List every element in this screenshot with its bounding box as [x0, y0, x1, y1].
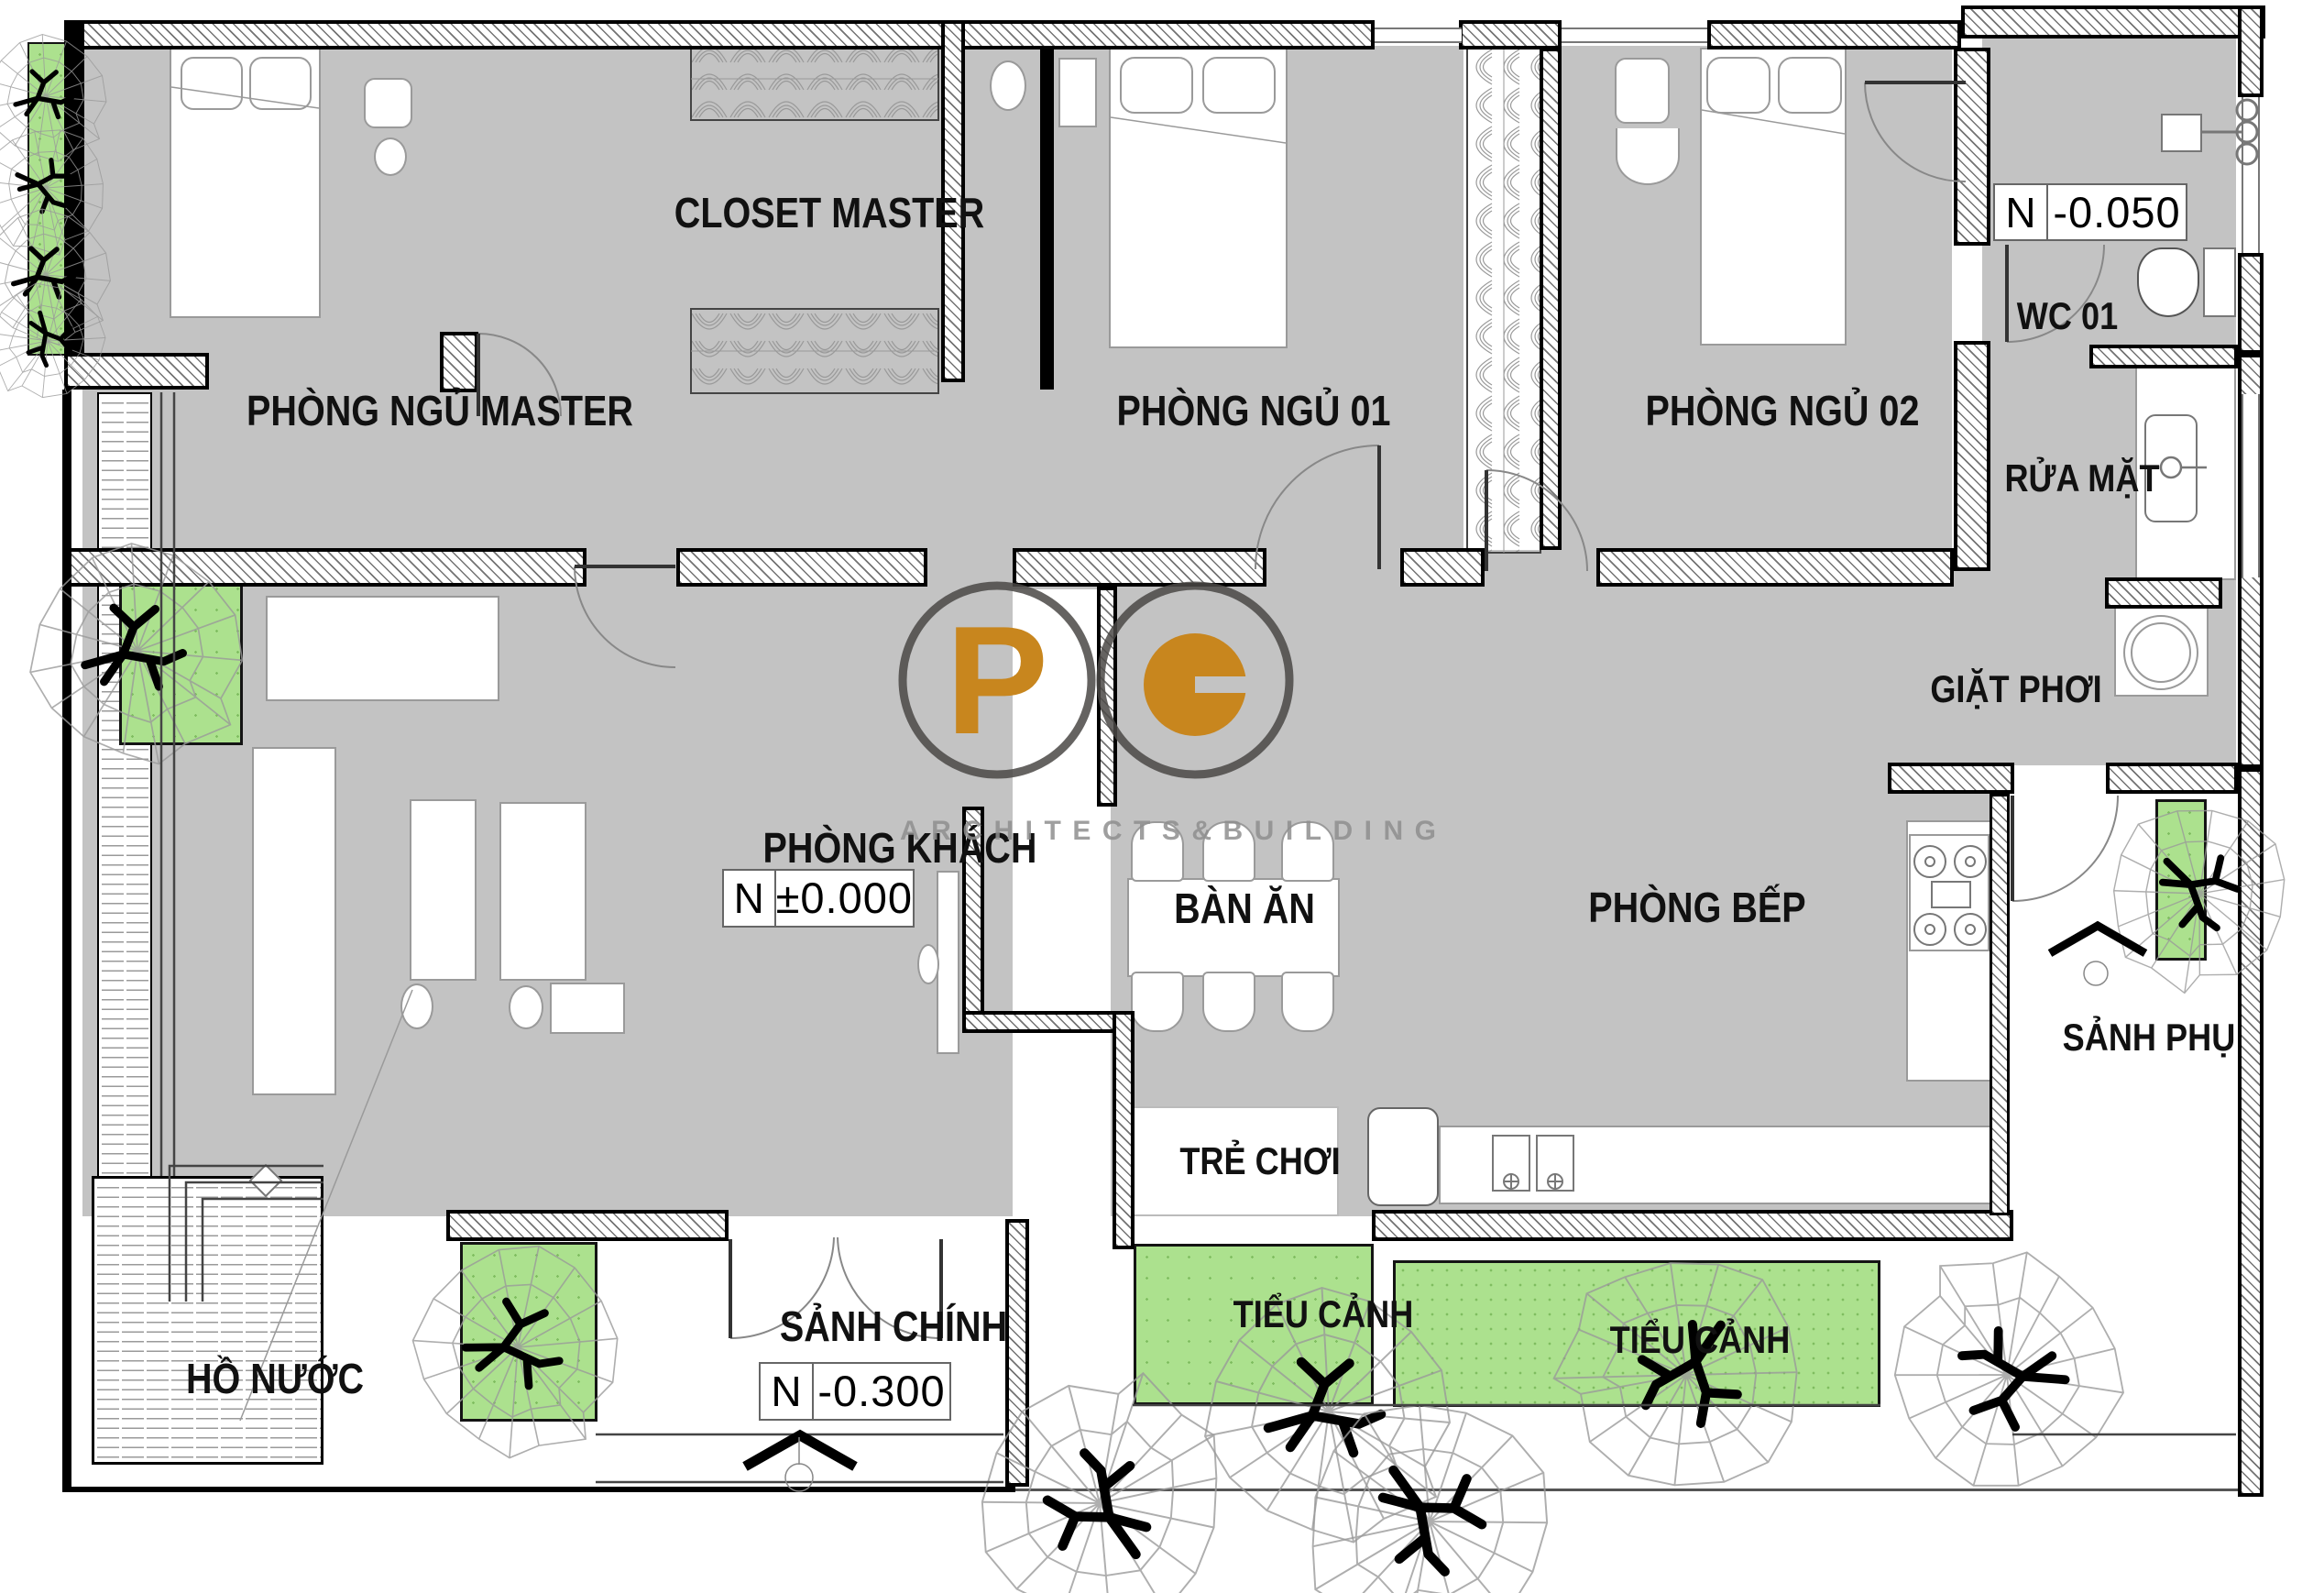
level-value: ±0.000	[776, 871, 913, 926]
room-label-ban-an: BÀN ĂN	[1174, 884, 1315, 933]
room-label-wc-01: WC 01	[2017, 294, 2118, 338]
watermark-subtitle: ARCHITECTS&BUILDING	[900, 816, 1448, 847]
room-label-closet-master: CLOSET MASTER	[674, 188, 984, 237]
level-value: -0.300	[814, 1364, 949, 1419]
floor-plan: N -0.050 N ±0.000 N -0.300 CLOSET MASTER…	[0, 0, 2324, 1593]
entry-arrow-side-icon	[2050, 926, 2145, 985]
bed-fold-lines	[171, 87, 1845, 143]
level-marker-wc: N -0.050	[1993, 183, 2187, 241]
room-label-tieu-canh-2: TIỂU CẢNH	[1610, 1318, 1791, 1362]
logo-letter-c	[1144, 633, 1252, 736]
washer-drum-icon	[2124, 616, 2198, 689]
room-label-bedroom-01: PHÒNG NGỦ 01	[1117, 386, 1391, 435]
room-label-bedroom-02: PHÒNG NGỦ 02	[1646, 386, 1920, 435]
level-marker-entrance: N -0.300	[759, 1362, 951, 1421]
level-value: -0.050	[2048, 185, 2186, 240]
room-label-ho-nuoc: HỒ NƯỚC	[186, 1354, 364, 1403]
logo-letter-p: P	[946, 594, 1048, 766]
logo-icon: P	[887, 570, 1309, 795]
room-label-sanh-phu: SẢNH PHỤ	[2063, 1016, 2236, 1060]
faucet-icon	[2161, 457, 2207, 478]
room-label-phong-bep: PHÒNG BẾP	[1588, 883, 1805, 932]
watermark-logo: P	[887, 570, 1309, 799]
room-label-rua-mat: RỬA MẶT	[2004, 456, 2159, 500]
room-label-giat-phoi: GIẶT PHƠI	[1930, 667, 2101, 711]
level-datum: N	[1995, 185, 2048, 240]
stove-burners-icon	[1914, 846, 1986, 945]
room-label-tre-choi: TRẺ CHƠI	[1179, 1139, 1340, 1183]
shower-arm-icon	[2201, 100, 2257, 164]
level-datum: N	[761, 1364, 814, 1419]
room-label-tieu-canh-1: TIỂU CẢNH	[1233, 1292, 1414, 1336]
room-label-sanh-chinh: SẢNH CHÍNH	[780, 1302, 1007, 1351]
level-datum: N	[724, 871, 776, 926]
room-label-master: PHÒNG NGỦ MASTER	[247, 386, 633, 435]
level-marker-living: N ±0.000	[722, 869, 915, 928]
porch-lines	[161, 392, 2236, 1482]
sink-drain-icons	[1504, 1174, 1562, 1189]
